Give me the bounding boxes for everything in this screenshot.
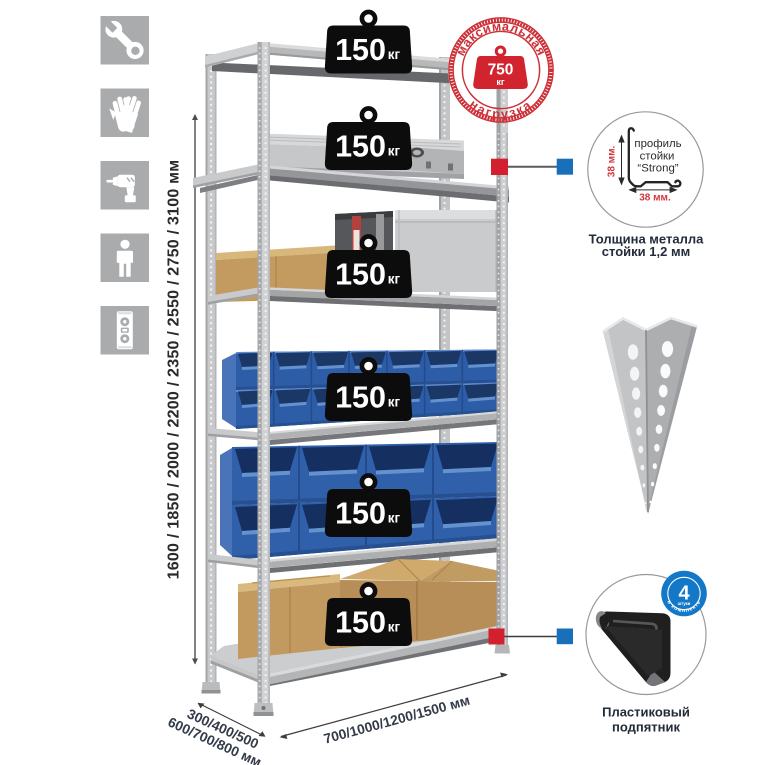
svg-text:стойки: стойки: [640, 151, 675, 163]
svg-text:кг: кг: [496, 77, 505, 87]
svg-text:“Strong”: “Strong”: [637, 163, 678, 175]
svg-text:штуки: штуки: [678, 601, 691, 606]
svg-text:1600 / 1850 / 2000 / 2200 / 23: 1600 / 1850 / 2000 / 2200 / 2350 / 2550 …: [165, 160, 183, 580]
svg-text:38 мм.: 38 мм.: [607, 146, 618, 178]
svg-text:750: 750: [488, 62, 514, 79]
svg-text:стойки 1,2 мм: стойки 1,2 мм: [602, 244, 690, 259]
svg-text:подпятник: подпятник: [612, 720, 681, 735]
svg-text:профиль: профиль: [634, 138, 681, 150]
svg-text:Пластиковый: Пластиковый: [602, 705, 690, 720]
svg-text:38 мм.: 38 мм.: [639, 193, 671, 204]
